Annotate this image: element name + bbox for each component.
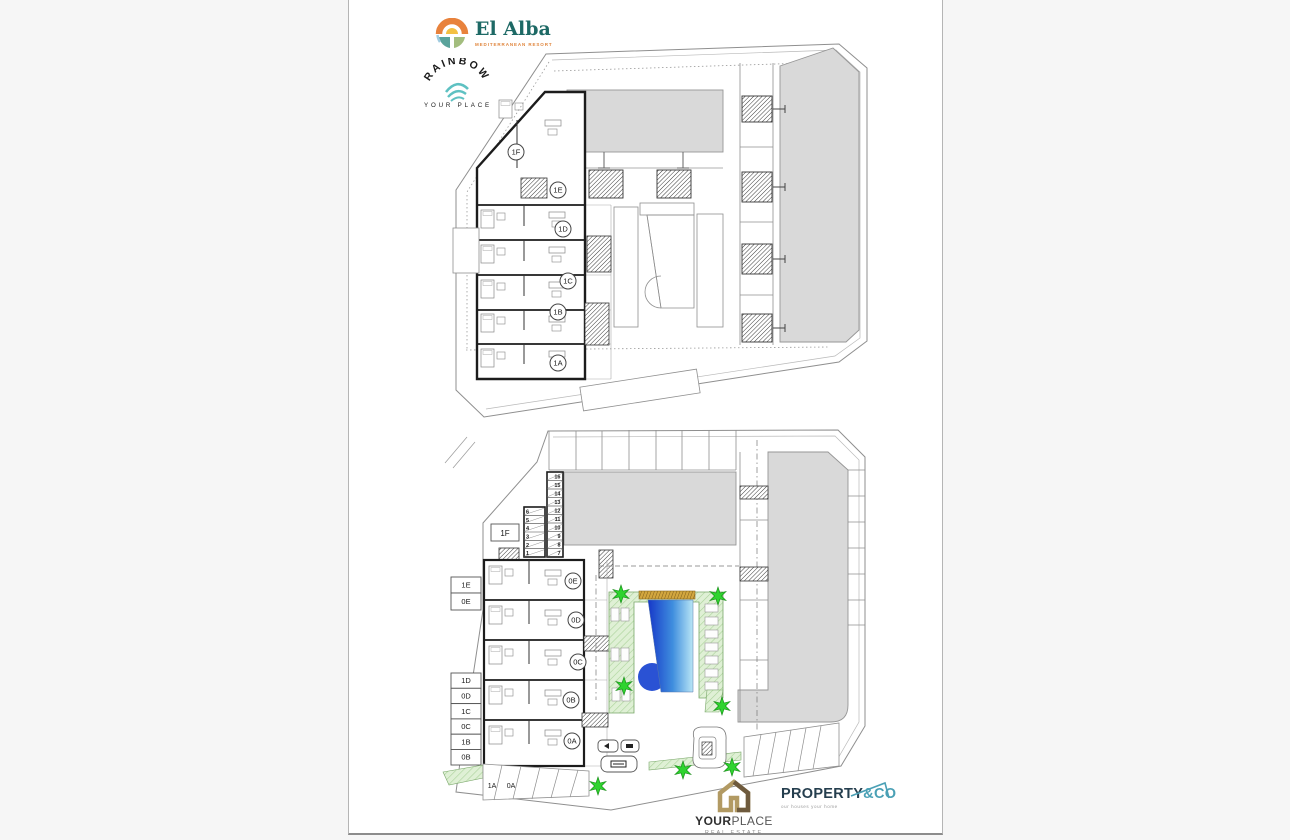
ground-floor-plan: 16 15 14 13 12 11 10 9 8 7 6 5 4 3 2 1: [443, 430, 865, 810]
unit-label-0B: 0B: [563, 692, 579, 708]
svg-text:1C: 1C: [563, 277, 573, 286]
property-co-name: PROPERTY&CO: [781, 786, 901, 802]
svg-text:12: 12: [554, 509, 560, 515]
svg-text:6: 6: [526, 510, 529, 516]
courtyard-outline: [614, 203, 723, 327]
playground: [693, 727, 726, 768]
svg-text:10: 10: [554, 526, 560, 532]
svg-text:0D: 0D: [571, 616, 581, 625]
corridor-stairs: [742, 96, 785, 342]
svg-text:0E: 0E: [461, 597, 470, 606]
plan-sheet: El Alba MEDITERRANEAN RESORT RAINBOW YOU…: [348, 0, 943, 835]
apartment-block-ground-floor: [484, 560, 610, 766]
svg-text:11: 11: [555, 517, 561, 523]
svg-text:1F: 1F: [512, 148, 521, 157]
parking-column-right: [848, 470, 865, 625]
unit-label-0D: 0D: [568, 612, 584, 628]
svg-text:0C: 0C: [461, 722, 471, 731]
svg-text:1: 1: [526, 551, 529, 557]
stairs-hatch: [657, 170, 691, 198]
unit-label-0C: 0C: [570, 654, 586, 670]
svg-text:0A: 0A: [507, 783, 516, 790]
svg-text:1B: 1B: [553, 308, 562, 317]
property-co-roof-icon: [847, 778, 899, 802]
svg-text:1A: 1A: [488, 783, 497, 790]
building-slab-upper: [564, 472, 736, 545]
svg-text:1D: 1D: [558, 225, 568, 234]
unit-label-1C: 1C: [560, 273, 576, 289]
vehicle-symbols: [598, 740, 639, 772]
svg-text:0E: 0E: [568, 577, 577, 586]
terrace-label-1F: 1F: [491, 524, 519, 541]
pool-area: [609, 591, 723, 713]
stairs-hatch: [589, 170, 623, 198]
yourplace-name: YOURPLACE: [689, 814, 779, 828]
svg-text:1E: 1E: [553, 186, 562, 195]
unit-label-1E: 1E: [550, 182, 566, 198]
first-floor-plan: 1F 1E 1D 1C 1B 1A: [453, 44, 867, 417]
svg-text:1B: 1B: [461, 737, 470, 746]
svg-text:2: 2: [526, 543, 529, 549]
unit-label-1D: 1D: [555, 221, 571, 237]
svg-text:1D: 1D: [461, 676, 471, 685]
svg-text:1A: 1A: [553, 359, 562, 368]
unit-label-0E: 0E: [565, 573, 581, 589]
svg-text:13: 13: [554, 500, 560, 506]
parking-row-bottom-left: 1A 0A: [483, 764, 589, 800]
svg-text:8: 8: [557, 543, 560, 549]
svg-text:1C: 1C: [461, 707, 471, 716]
pool-deck: [639, 591, 695, 599]
unit-label-1F: 1F: [508, 144, 524, 160]
page-background: { "logos": { "el_alba": { "name": "El Al…: [0, 0, 1290, 840]
svg-text:0B: 0B: [566, 696, 575, 705]
yourplace-logo: YOURPLACE REAL ESTATE: [689, 779, 779, 836]
svg-text:0A: 0A: [567, 737, 576, 746]
svg-text:0C: 0C: [573, 658, 583, 667]
storage-rooms: 16 15 14 13 12 11 10 9 8 7 6 5 4 3 2 1: [524, 472, 563, 557]
parking-row-top: [549, 430, 736, 470]
unit-label-1B: 1B: [550, 304, 566, 320]
yourplace-subtitle: REAL ESTATE: [689, 830, 779, 836]
property-co-tagline: our houses your home: [781, 804, 901, 809]
svg-text:5: 5: [526, 518, 529, 524]
neighbour-building-top: [567, 90, 723, 152]
svg-text:0B: 0B: [461, 753, 470, 762]
site-plans: 1F 1E 1D 1C 1B 1A: [349, 0, 942, 833]
svg-text:1E: 1E: [461, 581, 470, 590]
svg-text:7: 7: [557, 551, 560, 557]
svg-text:16: 16: [554, 475, 560, 481]
svg-text:14: 14: [554, 492, 561, 498]
svg-text:0D: 0D: [461, 692, 471, 701]
unit-label-1A: 1A: [550, 355, 566, 371]
svg-text:15: 15: [554, 483, 560, 489]
svg-text:3: 3: [526, 535, 529, 541]
svg-text:1F: 1F: [500, 529, 509, 538]
property-co-logo: PROPERTY&CO our houses your home: [781, 786, 901, 809]
svg-text:9: 9: [557, 534, 560, 540]
neighbour-building-right: [780, 48, 859, 342]
unit-label-0A: 0A: [564, 733, 580, 749]
duplex-label-boxes: 1E 0E 1D 0D 1C 0C 1B 0B: [451, 577, 481, 765]
yourplace-house-icon: [716, 779, 752, 813]
